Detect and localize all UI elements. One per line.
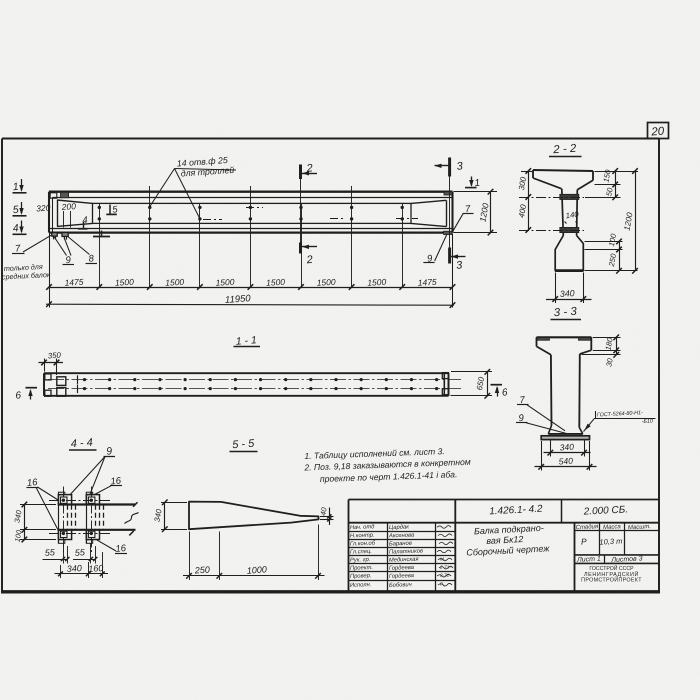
svg-text:Палатников: Палатников <box>389 548 423 555</box>
svg-text:5 - 5: 5 - 5 <box>232 438 256 452</box>
svg-text:1500: 1500 <box>316 277 336 288</box>
svg-text:1500: 1500 <box>165 277 185 288</box>
svg-text:1475: 1475 <box>417 277 437 288</box>
svg-text:4 - 4: 4 - 4 <box>70 437 93 451</box>
svg-text:Цардак: Цардак <box>389 524 409 531</box>
svg-text:Нач. отд: Нач. отд <box>350 524 375 531</box>
svg-text:-Б10: -Б10 <box>641 419 653 426</box>
svg-text:2-71-: 2-71- <box>439 565 451 570</box>
svg-text:1500: 1500 <box>266 277 286 288</box>
svg-text:350: 350 <box>48 351 62 361</box>
svg-text:Аксенова: Аксенова <box>388 532 415 539</box>
svg-text:Масса: Масса <box>603 524 622 531</box>
svg-text:Рук. гр.: Рук. гр. <box>350 557 371 564</box>
svg-text:Бобович: Бобович <box>389 582 412 589</box>
svg-text:340: 340 <box>560 288 575 299</box>
svg-text:140: 140 <box>565 210 580 221</box>
svg-text:Гл.спец.: Гл.спец. <box>350 549 372 556</box>
svg-text:Лист 1: Лист 1 <box>576 556 601 564</box>
svg-text:2-71-: 2-71- <box>439 573 451 578</box>
svg-text:Баранов: Баранов <box>389 541 412 548</box>
svg-text:Р: Р <box>581 536 588 546</box>
svg-text:2: 2 <box>305 162 313 175</box>
svg-text:Гордеева: Гордеева <box>389 573 415 580</box>
svg-text:10,3 т: 10,3 т <box>599 536 622 546</box>
svg-text:Гл.кон.об: Гл.кон.об <box>350 541 376 548</box>
svg-text:Исполн.: Исполн. <box>350 582 372 589</box>
svg-text:Гордеева: Гордеева <box>389 565 415 572</box>
svg-text:1: 1 <box>474 178 481 190</box>
svg-text:Р-: Р- <box>440 582 445 587</box>
svg-text:Мединская: Мединская <box>389 557 419 564</box>
svg-text:1500: 1500 <box>367 277 387 288</box>
svg-text:1500: 1500 <box>115 277 135 288</box>
svg-text:55: 55 <box>44 547 56 558</box>
svg-text:20: 20 <box>650 126 665 139</box>
svg-text:Н.контр.: Н.контр. <box>350 533 375 540</box>
svg-text:1: 1 <box>12 181 19 194</box>
svg-text:160: 160 <box>88 563 104 574</box>
svg-text:Проект.: Проект. <box>350 565 373 572</box>
svg-text:2: 2 <box>305 254 313 267</box>
svg-text:Стадия: Стадия <box>576 524 600 531</box>
svg-text:Провер.: Провер. <box>350 573 372 580</box>
svg-text:540: 540 <box>558 456 573 467</box>
svg-text:3 - 3: 3 - 3 <box>553 306 577 320</box>
svg-text:ПРОМСТРОЙПРОЕКТ: ПРОМСТРОЙПРОЕКТ <box>581 575 642 583</box>
svg-text:М-: М- <box>440 557 446 562</box>
svg-text:340: 340 <box>66 563 82 574</box>
svg-text:200: 200 <box>60 201 76 212</box>
svg-text:1475: 1475 <box>64 277 84 288</box>
svg-text:11950: 11950 <box>225 293 252 306</box>
svg-text:340: 340 <box>559 442 574 453</box>
svg-text:2 - 2: 2 - 2 <box>552 143 577 157</box>
svg-text:55: 55 <box>74 547 86 558</box>
svg-text:250: 250 <box>193 564 210 575</box>
svg-text:1000: 1000 <box>246 564 267 575</box>
svg-text:320: 320 <box>36 203 51 214</box>
svg-text:Масшт.: Масшт. <box>628 524 651 531</box>
svg-text:1 - 1: 1 - 1 <box>235 334 257 347</box>
svg-text:1500: 1500 <box>215 277 235 288</box>
